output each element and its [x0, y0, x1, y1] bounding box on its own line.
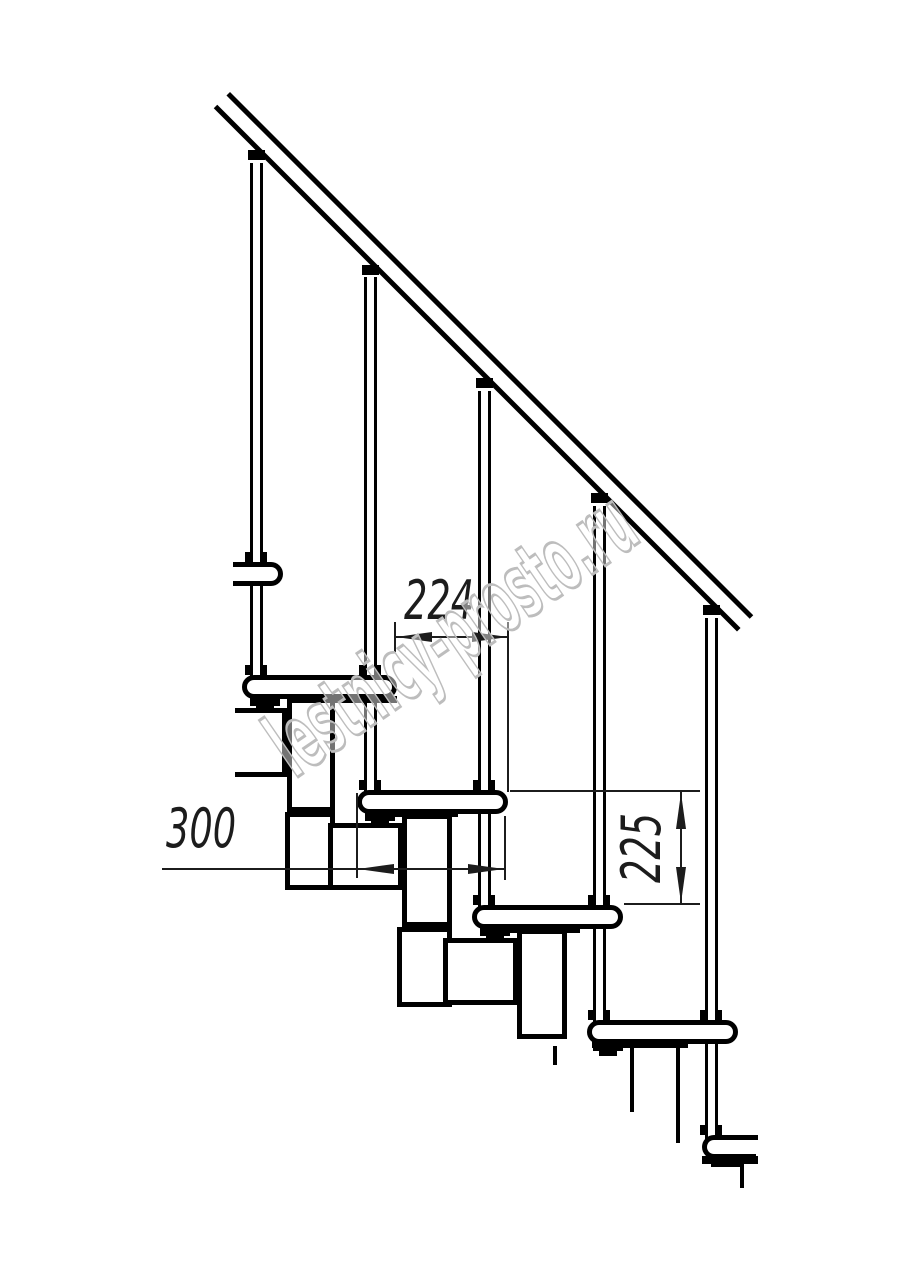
arrow-left-icon [358, 864, 394, 874]
baluster-collar [490, 780, 495, 790]
stringer-module [517, 929, 567, 1039]
baluster-collar [717, 1010, 722, 1020]
baluster-collar [700, 1125, 705, 1135]
stringer-module-box [443, 938, 518, 1005]
baluster-collar [245, 552, 250, 562]
tread [587, 1020, 738, 1044]
tread-edge-line [748, 1135, 758, 1140]
cut-line [630, 1047, 634, 1112]
tread-clamp [371, 821, 389, 826]
baluster-cap [248, 150, 265, 160]
baluster-cap [703, 605, 720, 615]
baluster-collar [605, 895, 610, 905]
arrow-down-icon [676, 867, 686, 903]
baluster-collar [588, 1010, 593, 1020]
baluster-collar [376, 780, 381, 790]
tread [357, 790, 508, 814]
baluster-collar [245, 665, 250, 675]
arrow-right-icon [468, 864, 504, 874]
baluster-5 [705, 618, 718, 1141]
tread [472, 905, 623, 929]
baluster-collar [473, 780, 478, 790]
baluster-cap [476, 378, 493, 388]
extension-line [510, 790, 700, 792]
dimension-label: 225 [615, 813, 669, 883]
baluster-collar [700, 1010, 705, 1020]
baluster-collar [717, 1125, 722, 1135]
baluster-collar [490, 895, 495, 905]
arrow-up-icon [676, 793, 686, 829]
dimension-line [162, 868, 506, 870]
baluster-collar [588, 895, 593, 905]
tread-top-partial [233, 562, 283, 586]
cut-line [553, 1046, 557, 1065]
tread-clamp [486, 936, 504, 941]
extension-line [624, 903, 700, 905]
extension-line [504, 816, 506, 880]
stringer-module [402, 814, 452, 927]
baluster-cap [362, 265, 379, 275]
dimension-label: 300 [166, 802, 236, 856]
baluster-collar [473, 895, 478, 905]
baluster-collar [262, 665, 267, 675]
cut-line [676, 1042, 680, 1143]
baluster-collar [359, 780, 364, 790]
baluster-collar [262, 552, 267, 562]
cut-line [740, 1163, 744, 1188]
baluster-1 [250, 163, 263, 681]
stringer-module-box [328, 823, 403, 890]
baluster-collar [605, 1010, 610, 1020]
tread-clamp [599, 1051, 617, 1056]
staircase-drawing: 224 300 225 lestnicy-prosto.ru [0, 0, 914, 1280]
